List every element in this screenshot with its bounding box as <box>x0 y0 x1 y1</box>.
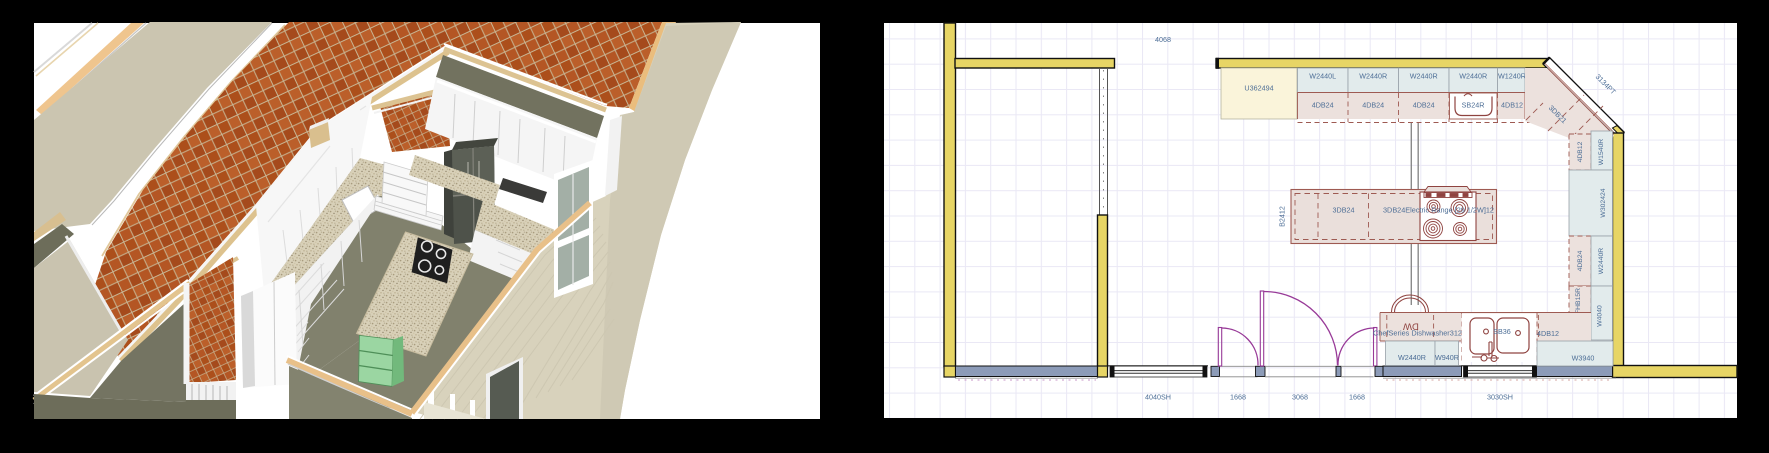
svg-text:4DB24: 4DB24 <box>1577 250 1584 271</box>
svg-text:4068: 4068 <box>1155 35 1171 44</box>
svg-text:4DB12: 4DB12 <box>1577 141 1584 162</box>
svg-text:4DB24: 4DB24 <box>1312 101 1334 110</box>
svg-text:3030SH: 3030SH <box>1487 393 1513 402</box>
svg-text:4DB12: 4DB12 <box>1501 101 1523 110</box>
svg-text:1668: 1668 <box>1349 393 1365 402</box>
svg-text:3068: 3068 <box>1292 393 1308 402</box>
svg-text:3DB24Electric Range [29 1/2W]1: 3DB24Electric Range [29 1/2W]12 <box>1383 206 1494 215</box>
svg-text:4DB12: 4DB12 <box>1537 329 1559 338</box>
svg-text:W4040: W4040 <box>1597 305 1604 327</box>
svg-text:FHB15R: FHB15R <box>1575 288 1582 314</box>
svg-text:4040SH: 4040SH <box>1145 393 1171 402</box>
svg-text:W1540R: W1540R <box>1598 139 1605 166</box>
svg-text:W2440R: W2440R <box>1598 248 1605 275</box>
svg-text:W302424: W302424 <box>1600 188 1607 217</box>
svg-text:W940R: W940R <box>1435 353 1459 362</box>
svg-text:W2440R: W2440R <box>1359 72 1387 81</box>
svg-text:1668: 1668 <box>1230 393 1246 402</box>
svg-text:W2440R: W2440R <box>1459 72 1487 81</box>
svg-text:W2440R: W2440R <box>1410 72 1438 81</box>
svg-text:U362494: U362494 <box>1244 84 1273 93</box>
svg-text:W2440R: W2440R <box>1398 353 1426 362</box>
svg-text:W3940: W3940 <box>1572 354 1595 363</box>
svg-text:W2440L: W2440L <box>1309 72 1336 81</box>
svg-text:3DB24: 3DB24 <box>1333 206 1355 215</box>
svg-text:W1240R: W1240R <box>1498 72 1526 81</box>
svg-text:SB36: SB36 <box>1493 327 1511 336</box>
svg-text:ChefSeries Dishwasher312: ChefSeries Dishwasher312 <box>1373 329 1462 338</box>
svg-text:4DB24: 4DB24 <box>1362 101 1384 110</box>
svg-text:SB24R: SB24R <box>1462 101 1485 110</box>
svg-text:4DB24: 4DB24 <box>1413 101 1435 110</box>
svg-text:B2412: B2412 <box>1278 206 1287 227</box>
